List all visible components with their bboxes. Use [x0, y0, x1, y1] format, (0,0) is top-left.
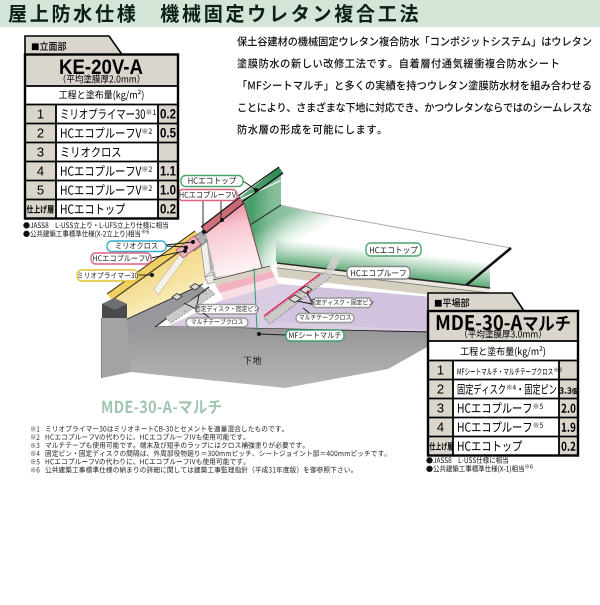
svg-text:1.0: 1.0 [160, 183, 176, 198]
svg-text:3: 3 [437, 401, 444, 416]
svg-text:1.1: 1.1 [160, 164, 176, 179]
svg-text:4: 4 [37, 164, 44, 179]
svg-text:2: 2 [37, 126, 44, 141]
svg-text:4: 4 [437, 420, 444, 435]
svg-text:2: 2 [437, 382, 444, 397]
svg-text:0.2: 0.2 [160, 107, 176, 122]
svg-text:1: 1 [437, 363, 444, 378]
svg-text:0.2: 0.2 [160, 202, 176, 217]
svg-text:1: 1 [37, 107, 44, 122]
svg-text:3: 3 [37, 145, 44, 160]
svg-text:5: 5 [37, 183, 44, 198]
svg-text:0.5: 0.5 [160, 126, 176, 141]
